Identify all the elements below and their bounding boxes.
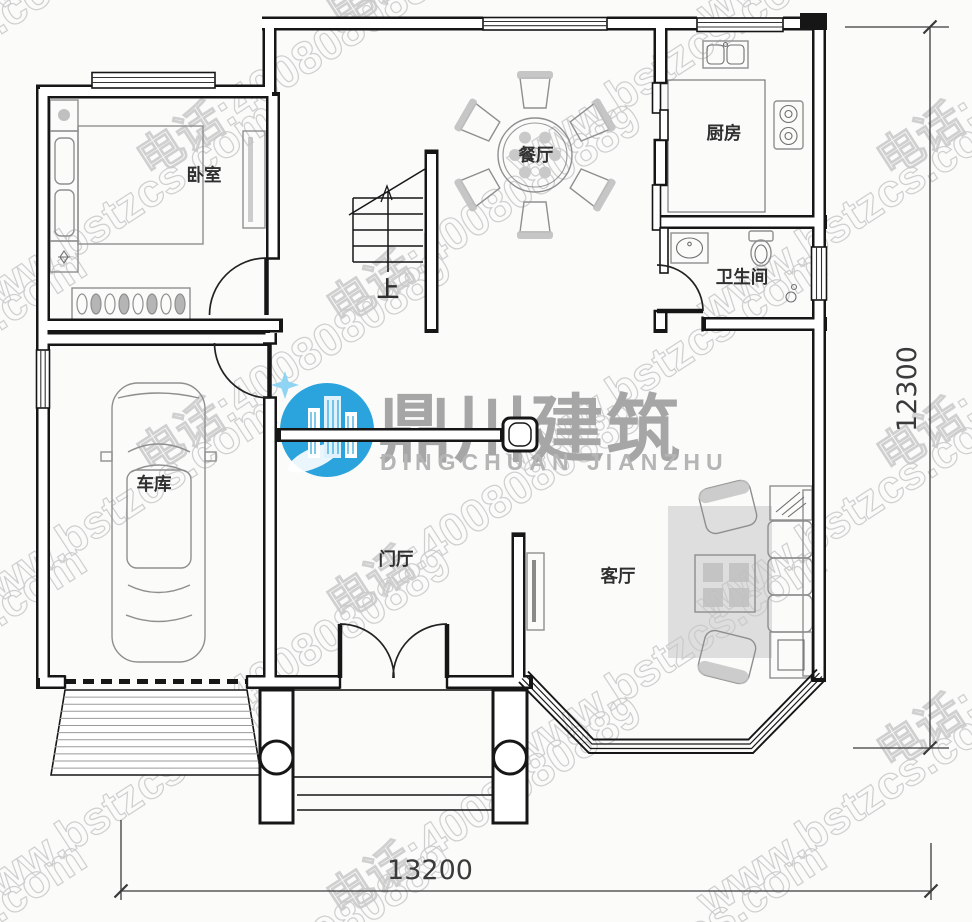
floor-plan-drawing: www.bstzcs.com电话:4008080889www.bstzcs.co…	[0, 0, 972, 922]
room-label-bedroom: 卧室	[187, 165, 222, 185]
garage-window	[37, 350, 50, 408]
room-label-dining: 餐厅	[519, 145, 554, 165]
dimension-width-label: 13200	[387, 855, 473, 886]
floor-plan-page: www.bstzcs.com电话:4008080889www.bstzcs.co…	[0, 0, 972, 922]
bathroom-window	[812, 247, 827, 300]
plate	[539, 132, 551, 144]
dimension-height-label: 12300	[892, 346, 923, 432]
plate	[519, 132, 531, 144]
bedroom-window	[92, 73, 215, 89]
hanger-icon	[175, 294, 185, 314]
kitchen-window	[697, 18, 783, 32]
corner-parapet	[800, 13, 827, 30]
stairs-up-label: 上	[377, 277, 399, 302]
room-label-garage: 车库	[137, 474, 172, 494]
room-label-living-room: 客厅	[600, 566, 636, 586]
room-label-entrance-hall: 门厅	[379, 549, 414, 569]
plate	[539, 166, 551, 178]
dining-window	[483, 18, 607, 31]
logo: 鼎川建筑 DINGCHUAN JIANZHU	[271, 371, 729, 479]
plate	[519, 166, 531, 178]
room-label-bathroom: 卫生间	[716, 267, 769, 287]
hanger-icon	[119, 294, 129, 314]
logo-latin-text: DINGCHUAN JIANZHU	[380, 449, 729, 475]
room-label-kitchen: 厨房	[707, 123, 742, 143]
hanger-icon	[147, 294, 157, 314]
hanger-icon	[91, 294, 101, 314]
